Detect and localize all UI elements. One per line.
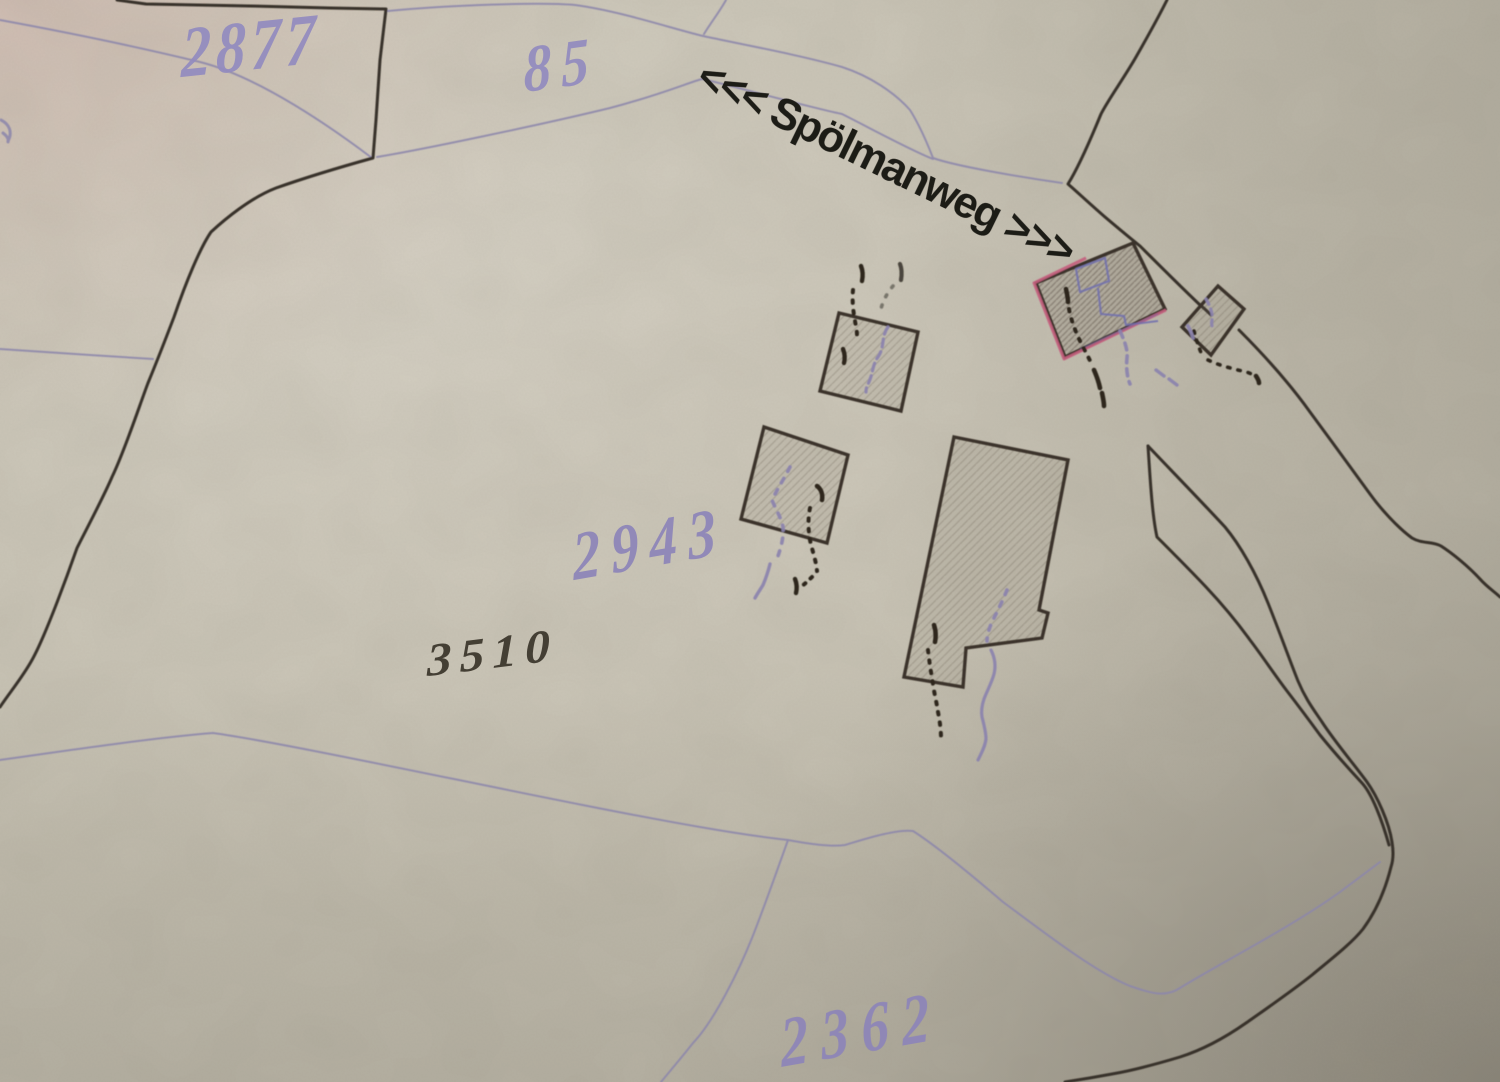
svg-text:85: 85: [523, 23, 600, 107]
svg-text:2877: 2877: [180, 0, 321, 93]
